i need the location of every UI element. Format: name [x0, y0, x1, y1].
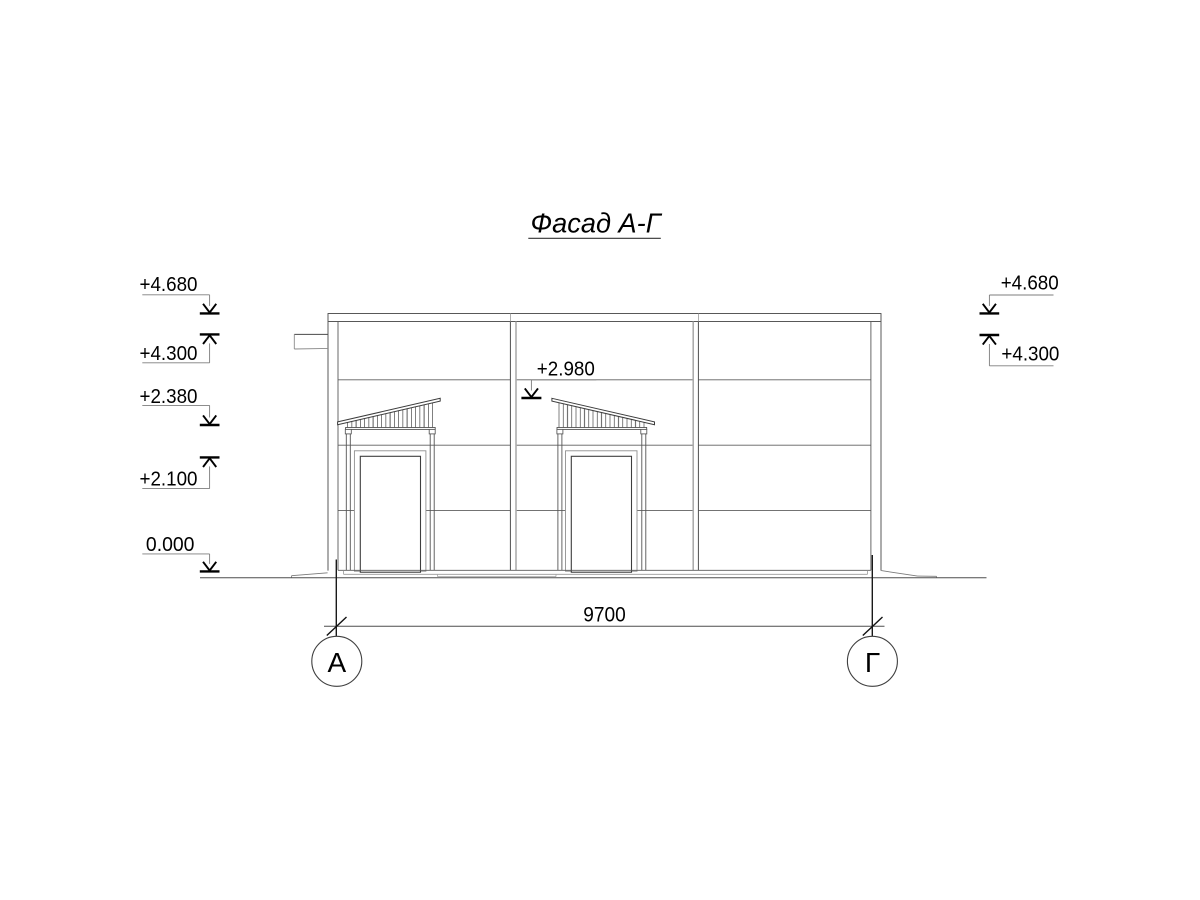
svg-text:+4.680: +4.680	[1001, 273, 1059, 295]
svg-text:А: А	[327, 647, 346, 678]
svg-text:+4.300: +4.300	[1001, 343, 1059, 365]
svg-text:+4.300: +4.300	[140, 343, 198, 365]
svg-text:Г: Г	[865, 647, 880, 678]
svg-text:+2.980: +2.980	[537, 359, 595, 381]
svg-text:+4.680: +4.680	[140, 274, 198, 296]
svg-text:0.000: 0.000	[146, 534, 195, 556]
svg-text:+2.100: +2.100	[140, 469, 198, 491]
svg-text:9700: 9700	[583, 603, 626, 626]
svg-text:Фасад А-Г: Фасад А-Г	[531, 208, 663, 239]
svg-text:+2.380: +2.380	[140, 386, 198, 408]
